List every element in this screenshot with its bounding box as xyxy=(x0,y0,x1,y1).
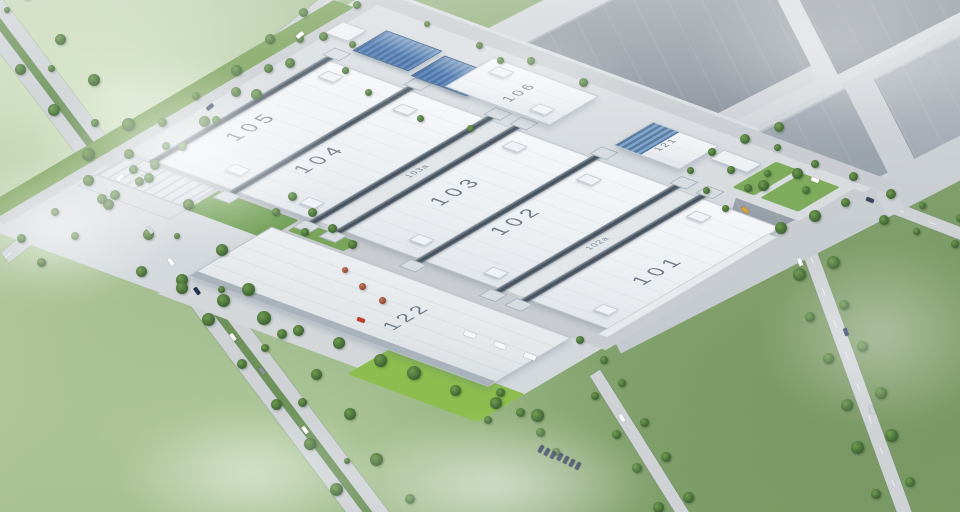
tree xyxy=(576,336,584,344)
tree xyxy=(359,283,366,290)
tree xyxy=(450,385,461,396)
tree xyxy=(348,240,357,249)
tree xyxy=(496,388,505,397)
tree xyxy=(775,222,787,234)
tree xyxy=(424,21,430,27)
tree xyxy=(600,356,608,364)
tree xyxy=(311,369,322,380)
tree xyxy=(202,313,215,326)
tree xyxy=(374,354,387,367)
tree xyxy=(851,441,864,454)
tree xyxy=(242,283,255,296)
tree xyxy=(342,267,348,273)
tree xyxy=(913,228,920,235)
tree xyxy=(809,210,821,222)
tree xyxy=(467,125,474,132)
tree xyxy=(217,294,230,307)
tree xyxy=(265,34,275,44)
tree xyxy=(293,325,304,336)
tree xyxy=(379,297,386,304)
tree xyxy=(344,408,356,420)
tree xyxy=(353,1,361,9)
tree xyxy=(319,32,328,41)
tree xyxy=(758,180,769,191)
tree xyxy=(4,7,10,13)
tree xyxy=(740,134,750,144)
tree xyxy=(708,148,716,156)
tree xyxy=(703,187,710,194)
tree xyxy=(407,366,421,380)
tree xyxy=(591,392,599,400)
tree xyxy=(285,58,295,68)
tree xyxy=(879,215,889,225)
tree xyxy=(722,205,729,212)
tree xyxy=(683,492,694,503)
tree xyxy=(885,429,898,442)
tree xyxy=(640,418,649,427)
tree xyxy=(618,379,626,387)
tree xyxy=(886,189,896,199)
tree xyxy=(349,41,356,48)
tree xyxy=(342,67,349,74)
tree xyxy=(298,398,307,407)
tree xyxy=(849,172,858,181)
tree xyxy=(218,286,225,293)
tree xyxy=(687,167,694,174)
tree xyxy=(301,228,309,236)
tree xyxy=(951,240,959,248)
tree xyxy=(744,184,752,192)
cloud xyxy=(430,30,630,120)
tree xyxy=(417,115,424,122)
tree xyxy=(764,170,771,177)
tree xyxy=(905,477,915,487)
tree xyxy=(841,198,850,207)
tree xyxy=(365,89,372,96)
tree xyxy=(328,224,337,233)
tree xyxy=(792,168,803,179)
tree xyxy=(333,337,345,349)
aerial-rendering-scene: 105 104 103a 103 102 102a 101 122 106 12… xyxy=(0,0,960,512)
tree xyxy=(490,397,502,409)
tree xyxy=(727,166,735,174)
tree xyxy=(956,214,960,222)
tree xyxy=(271,399,282,410)
tree xyxy=(919,202,926,209)
tree xyxy=(299,8,308,17)
tree xyxy=(871,489,881,499)
tree xyxy=(774,144,781,151)
